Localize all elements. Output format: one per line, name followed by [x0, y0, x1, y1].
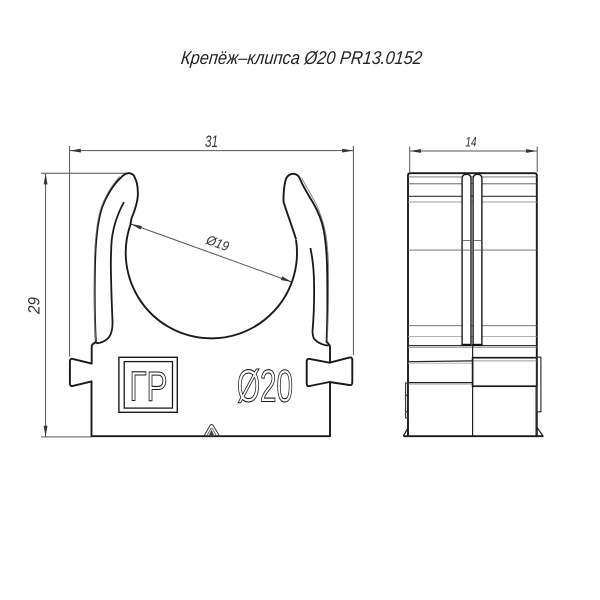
svg-text:ГР: ГР [130, 363, 168, 410]
svg-text:Крепёж–клипса Ø20 PR13.0152: Крепёж–клипса Ø20 PR13.0152 [180, 47, 424, 68]
svg-text:31: 31 [205, 132, 218, 151]
svg-text:14: 14 [466, 135, 477, 150]
svg-text:29: 29 [25, 297, 44, 315]
svg-text:Ø20: Ø20 [237, 360, 293, 411]
